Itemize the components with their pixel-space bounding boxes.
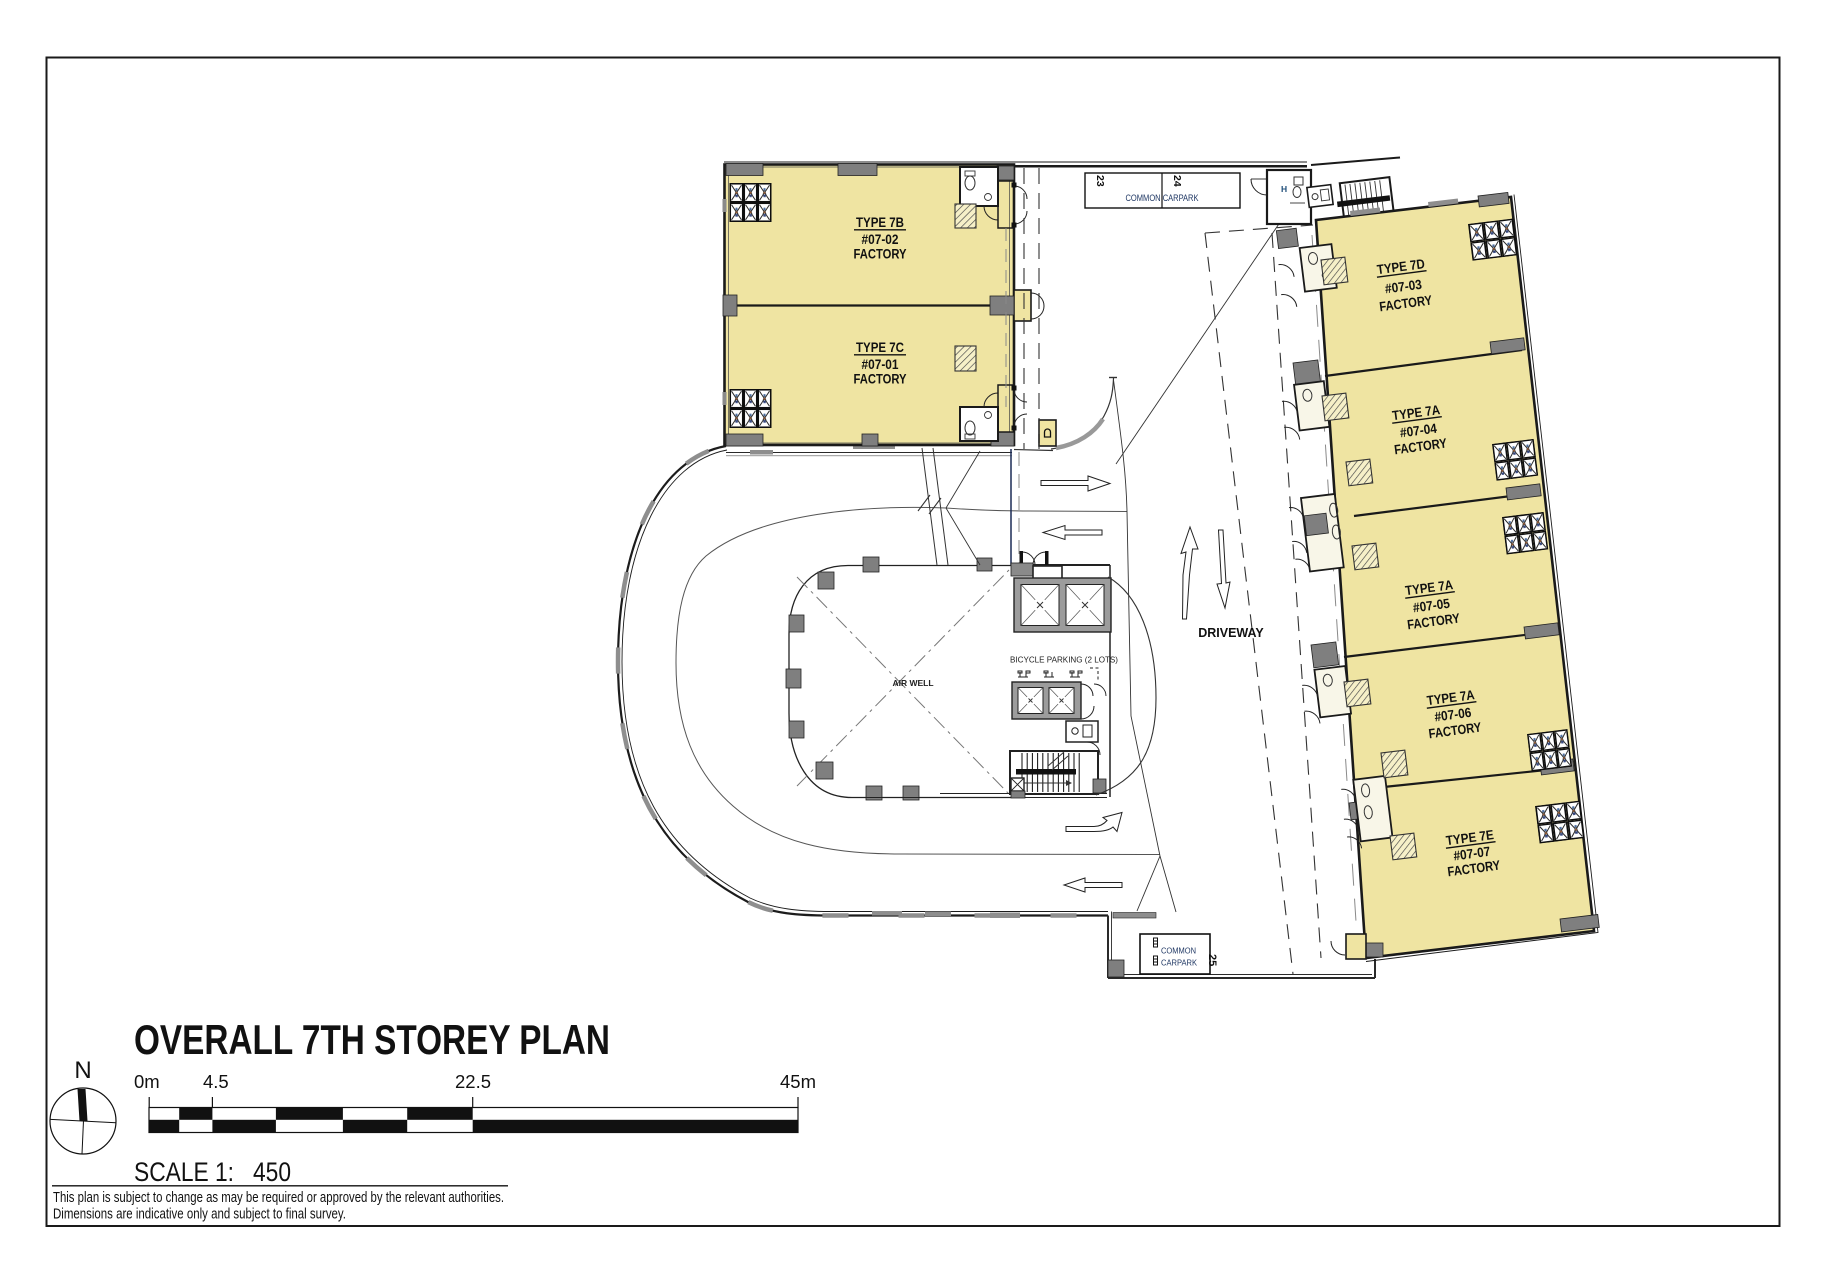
svg-text:25: 25 [1206, 954, 1218, 966]
svg-text:23: 23 [1094, 175, 1106, 187]
svg-text:This plan is subject to change: This plan is subject to change as may be… [53, 1189, 504, 1206]
svg-text:N: N [74, 1057, 91, 1084]
svg-text:TYPE 7C: TYPE 7C [856, 340, 904, 355]
svg-text:COMMON CARPARK: COMMON CARPARK [1126, 193, 1200, 203]
svg-text:BICYCLE PARKING (2 LOTS): BICYCLE PARKING (2 LOTS) [1010, 656, 1118, 665]
svg-text:SCALE 1: 450: SCALE 1: 450 [134, 1157, 291, 1187]
svg-text:24: 24 [1171, 175, 1183, 187]
svg-text:COMMON: COMMON [1161, 947, 1196, 956]
svg-text:CARPARK: CARPARK [1161, 959, 1197, 968]
svg-text:FACTORY: FACTORY [854, 372, 907, 387]
svg-text:TYPE 7B: TYPE 7B [856, 215, 904, 230]
svg-text:45m: 45m [780, 1071, 816, 1092]
svg-text:22.5: 22.5 [455, 1071, 491, 1092]
svg-text:0m: 0m [134, 1071, 160, 1092]
svg-text:4.5: 4.5 [203, 1071, 229, 1092]
svg-text:OVERALL 7TH STOREY PLAN: OVERALL 7TH STOREY PLAN [134, 1016, 610, 1063]
svg-text:#07-01: #07-01 [862, 357, 899, 372]
svg-text:H: H [1281, 184, 1287, 194]
svg-text:FACTORY: FACTORY [854, 247, 907, 262]
svg-text:#07-02: #07-02 [862, 232, 899, 247]
svg-text:AIR WELL: AIR WELL [892, 678, 933, 688]
svg-text:Dimensions are indicative only: Dimensions are indicative only and subje… [53, 1206, 346, 1223]
svg-text:DRIVEWAY: DRIVEWAY [1198, 626, 1264, 640]
